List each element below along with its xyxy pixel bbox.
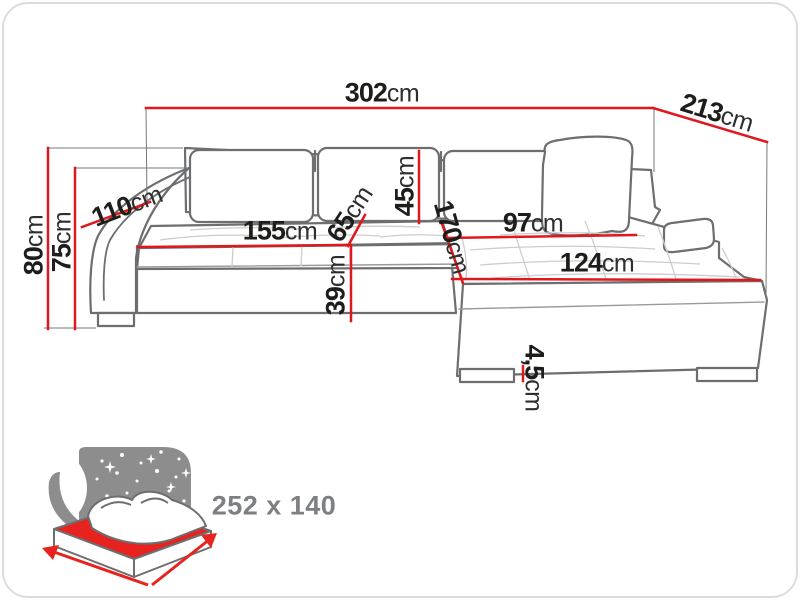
- sofa-chaise-leg-left: [460, 369, 514, 382]
- dim-label-backrest-cushion-height: 45cm: [392, 156, 419, 216]
- sofa-left-leg: [98, 313, 134, 326]
- sofa-chaise-front: [457, 281, 767, 376]
- dim-label-frame-height: 75cm: [49, 212, 76, 272]
- dim-label-seat-width: 155cm: [243, 218, 317, 245]
- dim-label-total-width: 302cm: [345, 80, 419, 107]
- sleeping-area-size: 252 x 140: [212, 493, 337, 520]
- sofa-dimension-diagram: 302cm 213cm 110cm 80cm 75cm 45cm 65cm 15…: [0, 0, 800, 600]
- sofa-drawing: [90, 137, 767, 382]
- ext-side-depth-right: [766, 142, 767, 296]
- dim-line-chaise-total-width: [452, 279, 760, 280]
- dim-label-total-height: 80cm: [21, 215, 48, 275]
- dim-label-seat-height: 39cm: [323, 255, 350, 315]
- sofa-armrest-pad: [664, 219, 714, 252]
- dim-label-leg-height: 4,5cm: [521, 345, 548, 412]
- back-cushion-1: [190, 150, 313, 222]
- dim-label-chaise-total-width: 124cm: [560, 250, 634, 277]
- moon-crescent-cut: [5, 447, 87, 529]
- sleeping-function-bed-icon: [5, 447, 217, 585]
- dim-label-chaise-seat-width: 97cm: [503, 210, 563, 237]
- sofa-chaise-leg-right: [697, 368, 757, 381]
